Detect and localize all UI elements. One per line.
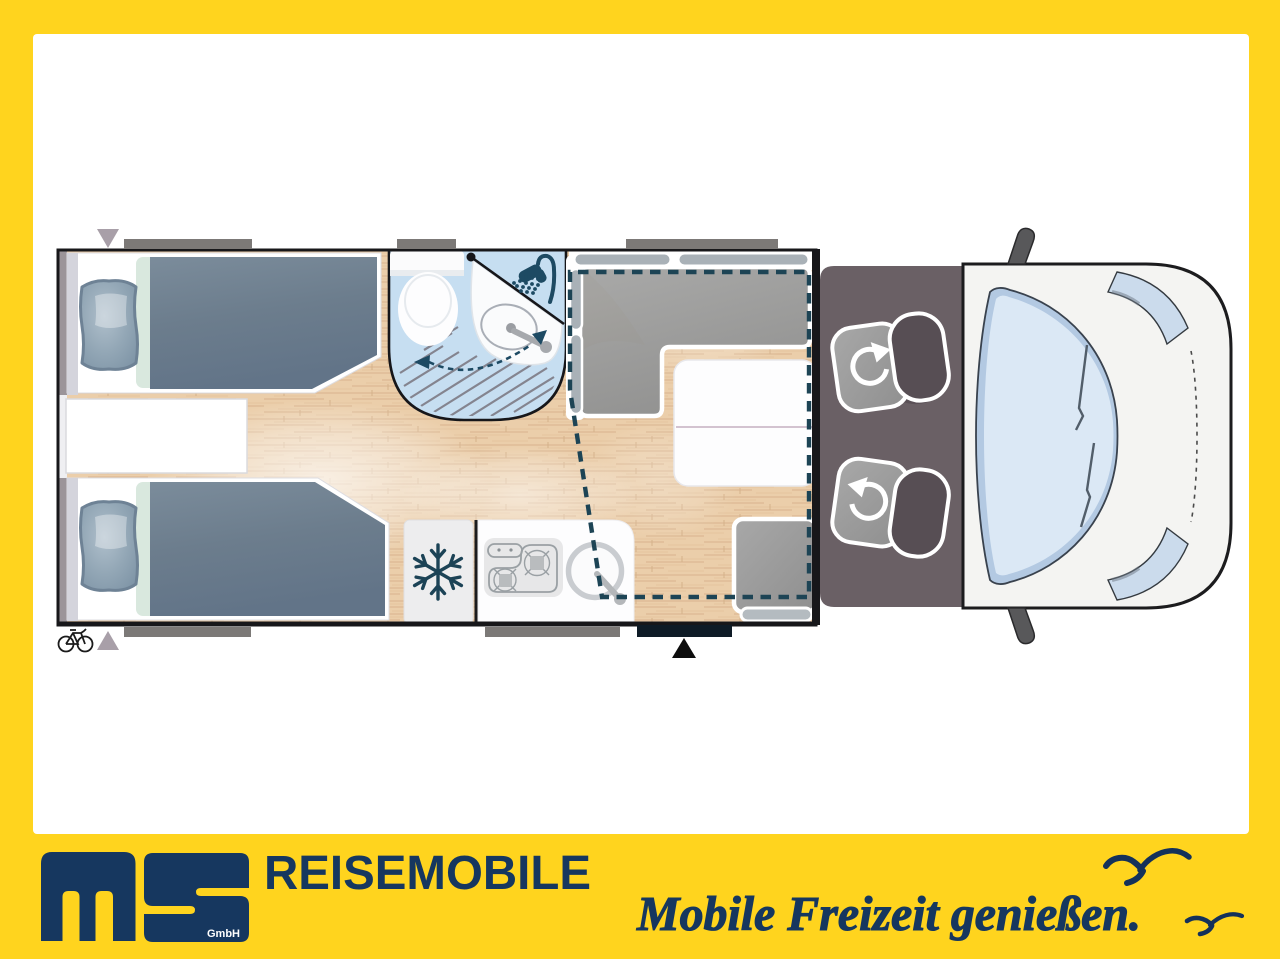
svg-text:REISEMOBILE: REISEMOBILE bbox=[264, 847, 591, 900]
svg-text:Mobile Freizeit genießen.: Mobile Freizeit genießen. bbox=[636, 886, 1141, 941]
svg-text:GmbH: GmbH bbox=[207, 928, 240, 940]
